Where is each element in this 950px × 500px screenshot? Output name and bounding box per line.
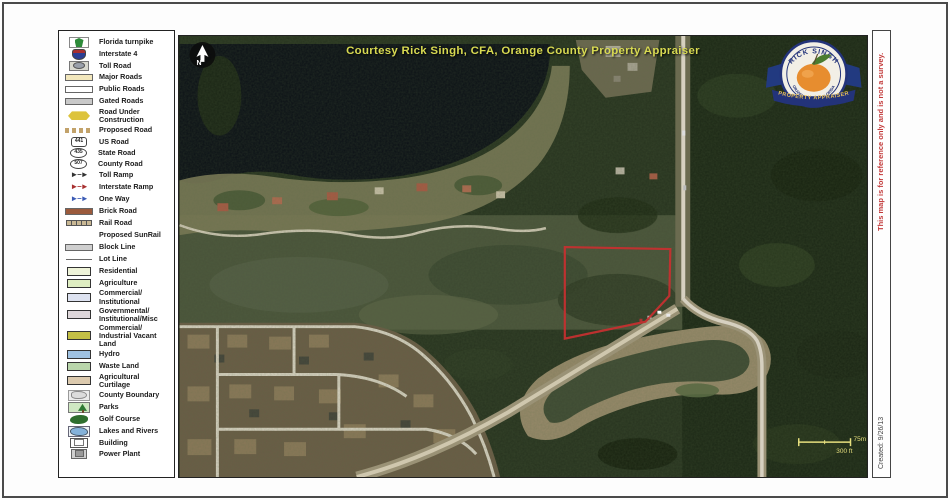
legend-item: Waste Land xyxy=(63,361,171,372)
route-shield-icon: 441 xyxy=(71,137,87,147)
legend-item-label: Florida turnpike xyxy=(99,38,153,46)
north-arrow-icon: N xyxy=(190,42,216,68)
swatch-icon xyxy=(63,361,95,372)
route-oval-icon: 435 xyxy=(70,148,87,158)
legend-item-label: Lot Line xyxy=(99,255,127,263)
water-icon xyxy=(68,426,90,437)
diamond-icon xyxy=(63,110,95,121)
legend-item-label: Proposed Road xyxy=(99,126,152,134)
map-image: N Courtesy Rick Singh, CFA, Orange Count… xyxy=(178,35,868,478)
legend-item: County Boundary xyxy=(63,390,171,401)
legend-item-label: US Road xyxy=(99,138,129,146)
swatch-icon xyxy=(63,375,95,386)
legend-item: Commercial/ Institutional xyxy=(63,289,171,305)
legend-item: Road Under Construction xyxy=(63,108,171,124)
legend-item: Power Plant xyxy=(63,449,171,459)
legend-item-label: Major Roads xyxy=(99,73,142,81)
county-icon xyxy=(68,390,90,401)
line-icon xyxy=(63,254,95,265)
legend-item: 507County Road xyxy=(63,159,171,169)
scale-imperial-label: 300 ft xyxy=(836,448,852,455)
bar-icon xyxy=(63,72,95,83)
legend-panel: Florida turnpikeInterstate 4Toll RoadMaj… xyxy=(58,30,175,478)
legend-item-label: Toll Road xyxy=(99,62,131,70)
map-credit-title: Courtesy Rick Singh, CFA, Orange County … xyxy=(346,45,700,57)
building-icon xyxy=(70,438,88,448)
legend-item: Agricultural Curtilage xyxy=(63,373,171,389)
legend-item: 441US Road xyxy=(63,137,171,147)
shield-green-icon xyxy=(69,37,89,48)
legend-item: 435State Road xyxy=(63,148,171,158)
legend-item-label: Commercial/ Institutional xyxy=(99,289,171,305)
legend-item-label: Waste Land xyxy=(99,362,139,370)
legend-item: Gated Roads xyxy=(63,96,171,107)
legend-item-label: Interstate Ramp xyxy=(99,183,153,191)
legend-item-label: Public Roads xyxy=(99,85,145,93)
legend-item: Residential xyxy=(63,266,171,277)
toll-road-icon xyxy=(69,61,89,71)
legend-item-label: Block Line xyxy=(99,243,135,251)
legend-item-label: Brick Road xyxy=(99,207,137,215)
legend-item: Building xyxy=(63,438,171,448)
bar-icon xyxy=(63,96,95,107)
swatch-icon xyxy=(63,266,95,277)
aerial-canvas: N Courtesy Rick Singh, CFA, Orange Count… xyxy=(179,36,867,477)
legend-item: Commercial/ Industrial Vacant Land xyxy=(63,324,171,348)
legend-item-label: Hydro xyxy=(99,350,120,358)
scale-metric-label: 75m xyxy=(854,436,867,443)
dashed-icon xyxy=(63,125,95,136)
powerplant-icon xyxy=(71,449,87,459)
legend-item-label: Residential xyxy=(99,267,137,275)
legend-item: Interstate 4 xyxy=(63,49,171,60)
arrows-icon: ►–► xyxy=(63,194,95,205)
legend-item-label: Agricultural Curtilage xyxy=(99,373,171,389)
legend-item-label: Toll Ramp xyxy=(99,171,133,179)
legend-item: Parks xyxy=(63,402,171,413)
legend-item: Proposed Road xyxy=(63,125,171,136)
map-export-page: Florida turnpikeInterstate 4Toll RoadMaj… xyxy=(0,0,950,500)
route-number: 441 xyxy=(75,139,83,144)
legend-item-label: Road Under Construction xyxy=(99,108,171,124)
legend-item-label: Power Plant xyxy=(99,450,140,458)
created-date: Created: 9/26/13 xyxy=(878,417,885,469)
north-label: N xyxy=(196,60,201,67)
legend-item-label: Governmental/ Institutional/Misc xyxy=(99,307,171,323)
margin-strip: This map is for reference only and is no… xyxy=(872,30,891,478)
arrows-icon: ►–► xyxy=(63,182,95,193)
swatch-icon xyxy=(63,330,95,341)
legend-item: Lakes and Rivers xyxy=(63,426,171,437)
swatch-icon xyxy=(63,278,95,289)
none-icon xyxy=(63,230,95,241)
legend-item: ►–►Toll Ramp xyxy=(63,170,171,181)
legend-item-label: Building xyxy=(99,439,128,447)
legend-item-label: Proposed SunRail xyxy=(99,231,161,239)
arrows-icon: ►–► xyxy=(63,170,95,181)
legend-list: Florida turnpikeInterstate 4Toll RoadMaj… xyxy=(59,31,174,477)
route-oval-icon: 507 xyxy=(70,159,87,169)
legend-item: Proposed SunRail xyxy=(63,230,171,241)
golf-icon xyxy=(63,414,95,425)
legend-item-label: Parks xyxy=(99,403,119,411)
legend-item-label: County Boundary xyxy=(99,391,159,399)
legend-item: Lot Line xyxy=(63,254,171,265)
legend-item-label: Commercial/ Industrial Vacant Land xyxy=(99,324,171,348)
route-number: 435 xyxy=(74,150,82,155)
legend-item-label: One Way xyxy=(99,195,130,203)
legend-item: Florida turnpike xyxy=(63,37,171,48)
legend-item-label: Lakes and Rivers xyxy=(99,427,158,435)
bar-icon xyxy=(63,242,95,253)
legend-item: Rail Road xyxy=(63,218,171,229)
legend-item: ►–►Interstate Ramp xyxy=(63,182,171,193)
bar-icon xyxy=(63,84,95,95)
legend-item-label: Agriculture xyxy=(99,279,137,287)
legend-item: Hydro xyxy=(63,349,171,360)
legend-item: Agriculture xyxy=(63,278,171,289)
swatch-icon xyxy=(63,349,95,360)
route-number: 507 xyxy=(74,161,82,166)
legend-item: Major Roads xyxy=(63,72,171,83)
bar-icon xyxy=(63,206,95,217)
rail-icon xyxy=(63,218,95,229)
legend-item: ►–►One Way xyxy=(63,194,171,205)
disclaimer-text: This map is for reference only and is no… xyxy=(877,53,885,231)
legend-item-label: County Road xyxy=(98,160,143,168)
swatch-icon xyxy=(63,292,95,303)
legend-item: Governmental/ Institutional/Misc xyxy=(63,307,171,323)
legend-item-label: Rail Road xyxy=(99,219,132,227)
legend-item: Brick Road xyxy=(63,206,171,217)
legend-item-label: Interstate 4 xyxy=(99,50,137,58)
tree-icon xyxy=(68,402,90,413)
legend-item: Golf Course xyxy=(63,414,171,425)
legend-item-label: Gated Roads xyxy=(99,97,143,105)
legend-item-label: State Road xyxy=(98,149,136,157)
shield-interstate-icon xyxy=(63,49,95,60)
legend-item: Toll Road xyxy=(63,61,171,71)
legend-item: Block Line xyxy=(63,242,171,253)
legend-item-label: Golf Course xyxy=(99,415,140,423)
swatch-icon xyxy=(63,309,95,320)
legend-item: Public Roads xyxy=(63,84,171,95)
